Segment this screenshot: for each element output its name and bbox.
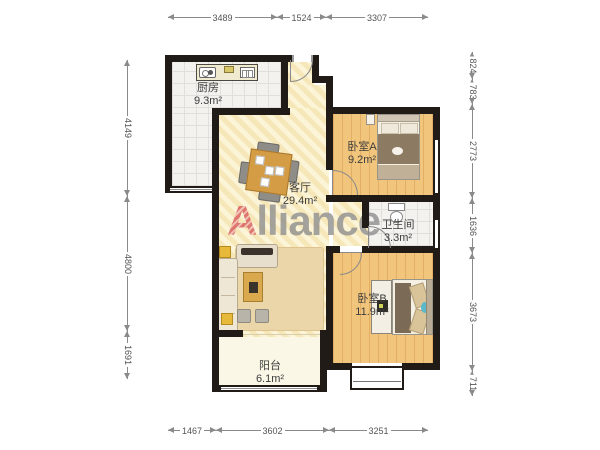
dim-right-5-value: 3673 [468,300,478,324]
dim-left-2-value: 4800 [123,251,133,275]
kitchen-area: 9.3m² [176,95,240,108]
dim-right-5: 3673 [472,253,473,371]
dim-top-2: 1524 [277,17,326,18]
balcony-label: 阳台 6.1m² [238,360,302,386]
dim-bottom-2: 3602 [216,430,329,431]
dim-right-2-value: 783 [468,82,478,101]
bedroom-b-area: 11.9m² [340,306,404,319]
dim-top-1: 3489 [168,17,277,18]
sink-icon [240,67,255,78]
bed-headboard [426,280,432,334]
dim-bottom-3-value: 3251 [366,426,390,436]
wall-bedroom-a-top [326,107,440,114]
kitchen-window [170,186,212,193]
bathroom-window [433,220,440,248]
wall-bedroom-b-bottom-right [402,363,440,370]
dim-left-2: 4800 [127,196,128,331]
entry-door-leaf [290,60,291,82]
bed-pillow [400,123,418,134]
living-label: 客厅 29.4m² [268,182,332,208]
dim-right-1-value: 824 [468,56,478,75]
balcony-threshold-line [243,334,320,335]
wall-balcony-top-stub [212,330,243,337]
dim-right-4-value: 1636 [468,213,478,237]
watermark-letter-a: A [227,197,256,244]
bedroom-b-door-leaf [340,252,362,253]
dim-right-2: 783 [472,79,473,104]
wall-bedroom-b-bottom-left [326,363,352,370]
bathroom-label: 卫生间 3.3m² [366,219,430,245]
dim-left-3: 1691 [127,331,128,379]
bedroom-a-window [433,140,440,193]
dim-right-3: 2773 [472,104,473,198]
bathroom-name: 卫生间 [366,219,430,232]
living-area: 29.4m² [268,195,332,208]
bed-headboard [378,115,419,122]
kitchen-name: 厨房 [176,82,240,95]
dim-bottom-2-value: 3602 [260,426,284,436]
bay-window [350,366,404,390]
bedroom-a-nightstand [366,114,375,125]
bedroom-a-label: 卧室A 9.2m² [330,141,394,167]
dim-left-1: 4149 [127,60,128,196]
wall-bedroom-a-bottom [326,195,440,202]
dim-right-6: 711 [472,371,473,396]
bed-pillow [381,123,399,134]
dim-right-4: 1636 [472,198,473,253]
wall-kitchen-left [165,55,172,193]
dim-right-3-value: 2773 [468,139,478,163]
dim-right-6-value: 711 [468,374,478,392]
side-table [219,246,231,258]
wall-kitchen-inner [212,108,290,115]
bay-window-line [353,381,401,382]
coffee-table [243,272,263,302]
dim-top-3: 3307 [326,17,428,18]
dim-left-1-value: 4149 [123,116,133,140]
dim-right-1: 824 [472,52,473,79]
balcony-name: 阳台 [238,360,302,373]
wall-kitchen-right [281,55,288,115]
kitchen-floor-leg [172,108,212,186]
floorplan-canvas: Alliance 厨房 9.3m² 客厅 29.4m² [0,0,600,450]
dim-top-2-value: 1524 [289,13,313,23]
dim-bottom-1-value: 1467 [180,426,204,436]
ottoman [255,309,269,323]
bedroom-a-door-leaf [332,170,333,195]
wall-bedroom-b-left [326,246,333,370]
dim-bottom-3: 3251 [329,430,428,431]
bedroom-b-name: 卧室B [340,293,404,306]
wall-living-left [212,108,219,392]
dim-left-3-value: 1691 [123,343,133,367]
balcony-window [221,385,317,392]
balcony-area: 6.1m² [238,373,302,386]
kitchen-label: 厨房 9.3m² [176,82,240,108]
bedroom-a-area: 9.2m² [330,154,394,167]
wall-top [165,55,292,62]
side-table [221,313,233,325]
bed-foot [378,165,419,179]
dim-top-3-value: 3307 [365,13,389,23]
kitchen-hob-icon [224,66,234,73]
dim-bottom-1: 1467 [168,430,216,431]
living-name: 客厅 [268,182,332,195]
toilet-icon [388,203,405,211]
stove-icon [199,67,216,78]
wall-balcony-right [320,330,327,392]
dim-top-1-value: 3489 [210,13,234,23]
wall-right-bedroom-b [433,253,440,370]
ottoman [237,309,251,323]
bedroom-b-label: 卧室B 11.9m² [340,293,404,319]
bedroom-a-name: 卧室A [330,141,394,154]
sofa-main [236,244,278,268]
bathroom-area: 3.3m² [366,232,430,245]
